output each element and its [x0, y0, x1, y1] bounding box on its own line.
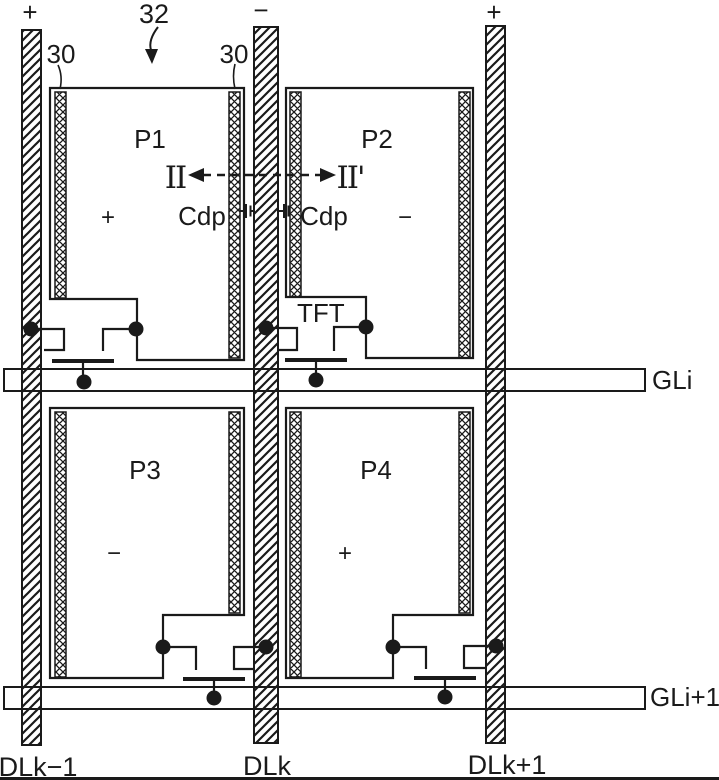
pixel-p1-label: P1	[134, 124, 166, 154]
storage-strip-p2-right	[459, 92, 470, 358]
gate-line-gli-label: GLi	[652, 365, 692, 395]
polarity-dlk-1: +	[22, 0, 37, 27]
pixel-p3-label: P3	[129, 455, 161, 485]
contact-dot-p4-drain	[386, 640, 401, 655]
data-line-dlk-1-label: DLk−1	[0, 752, 77, 780]
storage-strip-p1-right	[229, 92, 240, 358]
contact-dot-p1-gate	[77, 375, 92, 390]
storage-strip-p1-left	[55, 92, 66, 298]
contact-dot-p1-drain	[129, 322, 144, 337]
contact-dot-p3-drain	[156, 640, 171, 655]
storage-strip-p4-left	[290, 412, 301, 677]
data-line-dlk1	[486, 26, 505, 743]
data-line-dlk1-label: DLk+1	[468, 750, 547, 780]
cdp-left-label: Cdp	[178, 201, 226, 231]
contact-dot-p4-gate	[438, 690, 453, 705]
data-line-dlk	[254, 27, 278, 743]
storage-strip-p2-left	[290, 92, 301, 297]
contact-dot-p1-source	[24, 322, 39, 337]
storage-strip-p4-right	[459, 412, 470, 613]
ref-30-left-label: 30	[47, 39, 76, 69]
pixel-p2-polarity: −	[398, 204, 412, 231]
ref-30-right-label: 30	[220, 39, 249, 69]
gate-line-gli1-label: GLi+1	[650, 682, 719, 712]
contact-dot-p4-source	[489, 639, 504, 654]
section-marker-right: II'	[336, 160, 363, 196]
polarity-dlk1: +	[486, 0, 501, 27]
ref-32-label: 32	[139, 0, 169, 29]
gate-line-gli1	[4, 687, 645, 709]
patent-figure: + 32 − + 30 30 P1 P2 P3 P4 II II' Cdp Cd…	[0, 0, 719, 780]
data-line-dlk-label: DLk	[243, 751, 292, 780]
storage-strip-p3-right	[229, 412, 240, 613]
pixel-p4-label: P4	[360, 455, 392, 485]
section-marker-left: II	[165, 160, 186, 196]
contact-dot-p3-gate	[207, 691, 222, 706]
contact-dot-p2-drain	[359, 320, 374, 335]
pixel-p1-polarity: +	[101, 204, 115, 231]
pixel-p3-polarity: −	[107, 540, 121, 567]
storage-strip-p3-left	[55, 412, 66, 677]
contact-dot-p2-source	[259, 321, 274, 336]
gate-line-gli	[4, 369, 645, 391]
data-line-dlk-1	[22, 30, 41, 745]
tft-label: TFT	[297, 298, 345, 328]
pixel-p4-polarity: +	[338, 540, 352, 567]
contact-dot-p2-gate	[309, 373, 324, 388]
pixel-p2-label: P2	[361, 124, 393, 154]
contact-dot-p3-source	[259, 640, 274, 655]
pixel-array-diagram: + 32 − + 30 30 P1 P2 P3 P4 II II' Cdp Cd…	[0, 0, 719, 780]
polarity-dlk: −	[253, 0, 268, 25]
cdp-right-label: Cdp	[300, 201, 348, 231]
